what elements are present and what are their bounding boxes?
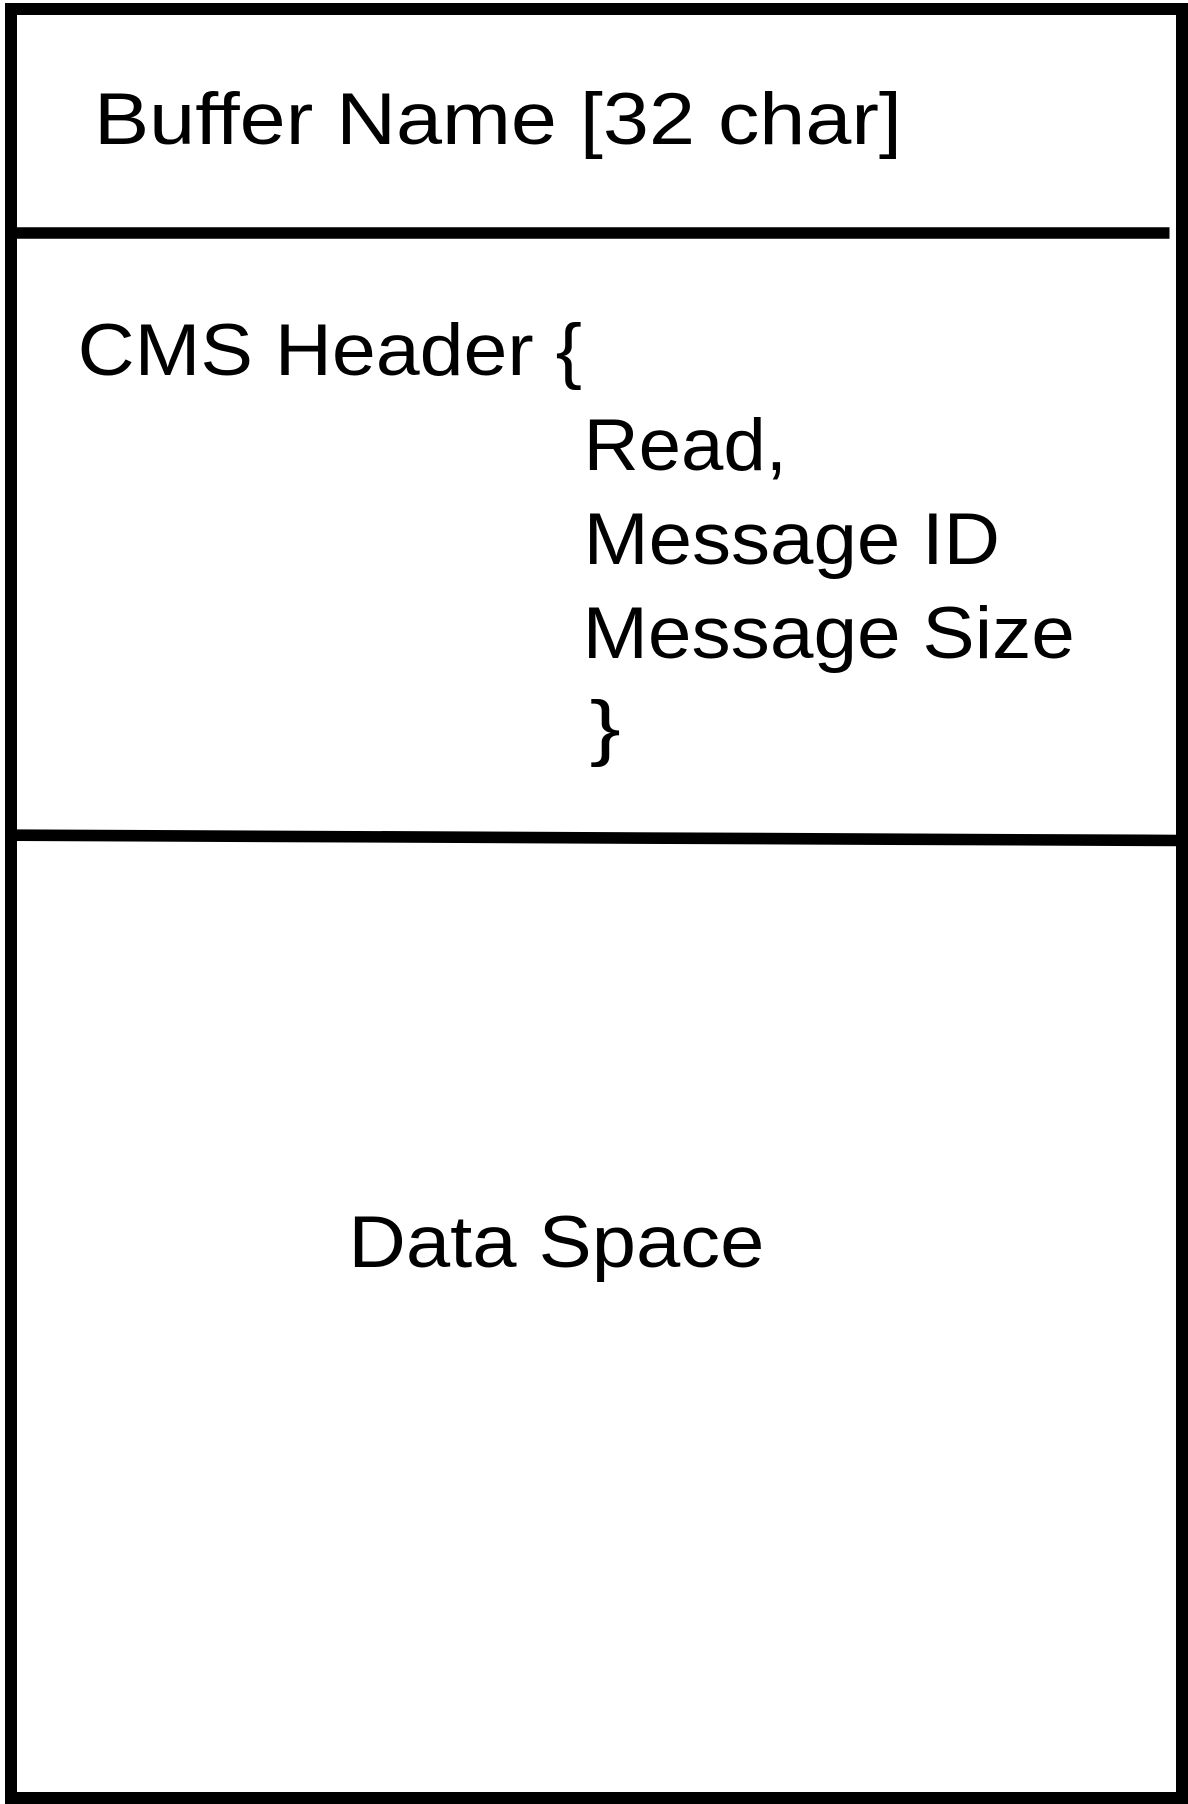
- svg-text:CMS Header {: CMS Header {: [78, 310, 582, 391]
- svg-text:Data Space: Data Space: [348, 1202, 764, 1283]
- svg-text:Read,: Read,: [584, 405, 787, 486]
- svg-text:Message ID: Message ID: [584, 499, 1000, 580]
- svg-text:Message Size: Message Size: [583, 593, 1075, 674]
- svg-text:}: }: [590, 687, 621, 768]
- svg-text:Buffer Name [32 char]: Buffer Name [32 char]: [94, 79, 902, 160]
